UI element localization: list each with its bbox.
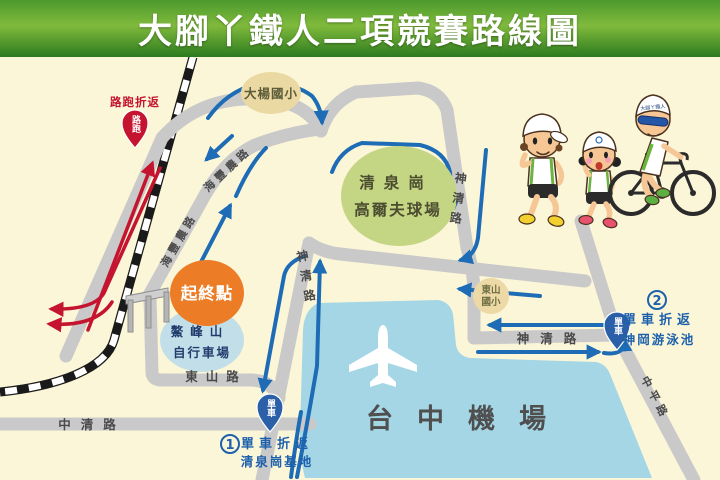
bike2-pin-label: 單車	[612, 317, 623, 336]
bike1-pin-label: 單車	[265, 399, 276, 418]
run-turnaround-marker: 路跑折返 路跑	[110, 95, 160, 148]
shenqing-road-label-east: 神清路	[517, 331, 588, 346]
bike2-number: 2	[652, 294, 661, 309]
map-svg: 大楊國小 清泉崗 高爾夫球場 鰲峰山 自行車場 起終點 東山 國小 台中機場	[0, 57, 720, 480]
title-banner: 大腳丫鐵人二項競賽路線圖	[0, 0, 720, 57]
start-finish-label: 起終點	[180, 283, 234, 303]
bike2-note-2: 神岡游泳池	[623, 332, 696, 347]
haifeng-road-label-upper: 海豐農路	[201, 143, 254, 194]
start-gate	[126, 288, 169, 332]
bike2-note-1: 單車折返	[623, 312, 695, 328]
aofeng-label-1: 鰲峰山	[170, 324, 230, 339]
route-map-poster: 大腳丫鐵人二項競賽路線圖	[0, 0, 720, 480]
golf-course-label-2: 高爾夫球場	[354, 200, 442, 219]
bike-turnaround-2: 單車 2 單車折返 神岡游泳池	[604, 291, 695, 350]
golf-course-label-1: 清泉崗	[359, 173, 433, 192]
golf-course-bubble	[341, 146, 457, 246]
aofeng-label-2: 自行車場	[173, 345, 231, 360]
dongshan-school-label-2: 國小	[481, 296, 501, 308]
run-pin-label: 路跑	[130, 114, 141, 134]
bike1-note-1: 單車折返	[241, 436, 313, 452]
zhongqing-road-label: 中清路	[58, 417, 126, 432]
road-airport-north	[309, 243, 585, 281]
dongshan-school-label-1: 東山	[480, 284, 500, 296]
haifeng-road-label-lower: 海豐農路	[157, 211, 199, 270]
bike1-note-2: 清泉崗基地	[241, 454, 314, 469]
run-turnaround-note: 路跑折返	[110, 95, 160, 109]
dongshan-school-bubble	[473, 278, 509, 314]
illustration-cyclist: 大腳ㄚ鐵人	[610, 95, 714, 214]
illustration-runner-boy	[519, 114, 569, 228]
dongshan-road-label: 東山路	[185, 369, 247, 384]
bike1-number: 1	[225, 438, 234, 453]
airport-label: 台中機場	[366, 403, 570, 435]
daya-school-label: 大楊國小	[244, 86, 298, 101]
page-title: 大腳丫鐵人二項競賽路線圖	[138, 4, 582, 53]
